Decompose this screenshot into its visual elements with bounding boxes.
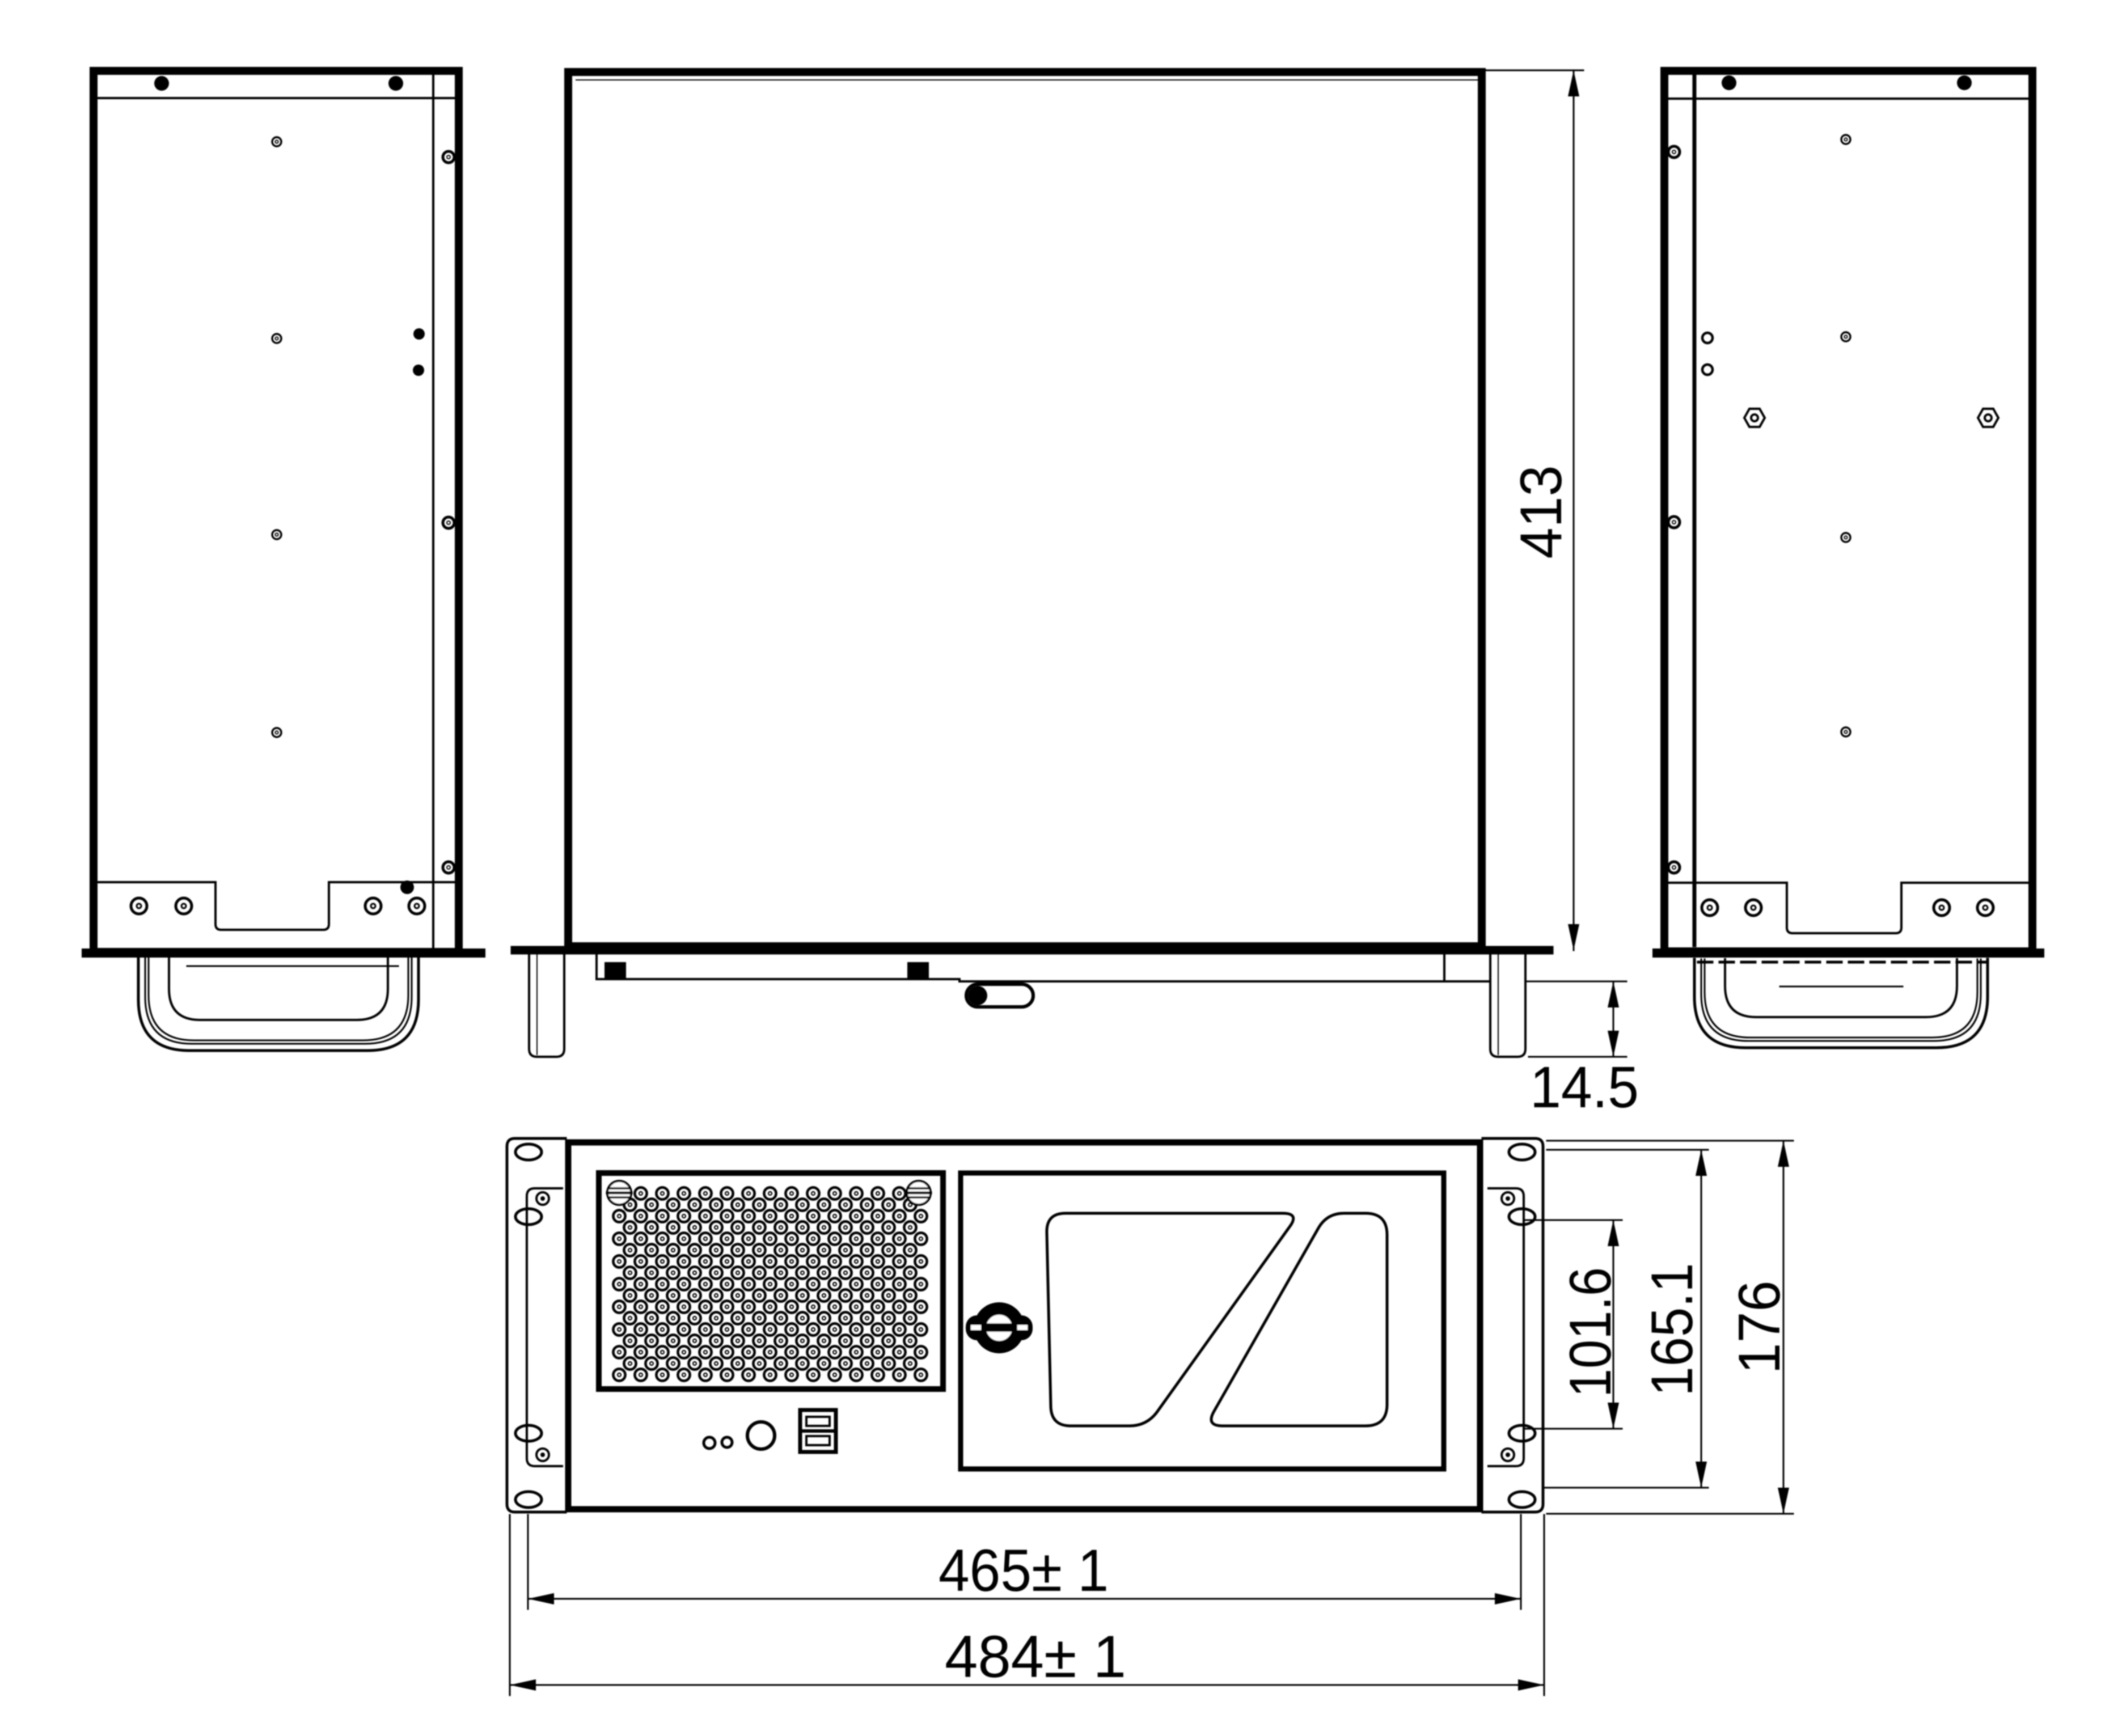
- svg-text:165.1: 165.1: [1639, 1263, 1705, 1396]
- svg-text:101.6: 101.6: [1558, 1267, 1624, 1398]
- svg-text:484± 1: 484± 1: [945, 1624, 1126, 1690]
- svg-text:14.5: 14.5: [1530, 1055, 1639, 1120]
- svg-text:176: 176: [1727, 1281, 1793, 1374]
- svg-text:465± 1: 465± 1: [939, 1538, 1109, 1604]
- svg-text:413: 413: [1508, 465, 1574, 559]
